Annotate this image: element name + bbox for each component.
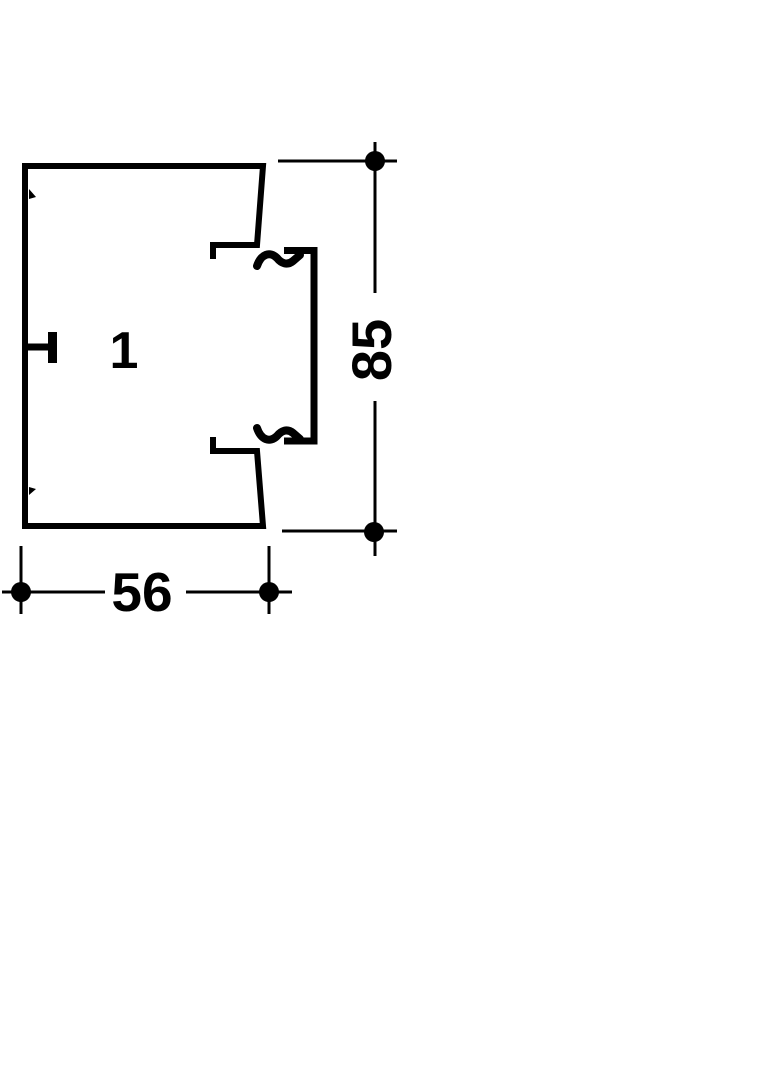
width-dimension-value: 56 — [111, 561, 172, 623]
cover-channel — [257, 251, 314, 442]
trunking-cross-section-drawing: 85 56 1 — [0, 0, 784, 1066]
height-dimension-dot-bottom — [364, 522, 384, 542]
base-profile-outline — [25, 166, 263, 526]
width-dimension: 56 — [2, 546, 292, 623]
wall-notch-top — [29, 189, 36, 199]
height-dimension-value: 85 — [340, 319, 403, 381]
wall-notch-bottom — [29, 487, 36, 495]
cover-clip-squiggle-top — [257, 254, 300, 266]
cover-channel-outline — [284, 251, 314, 442]
height-dimension: 85 — [278, 142, 403, 556]
width-dimension-dot-left — [11, 582, 31, 602]
cover-clip-squiggle-bottom — [257, 428, 300, 440]
base-profile — [25, 166, 263, 526]
section-number-label: 1 — [110, 322, 139, 380]
height-dimension-dot-top — [365, 151, 385, 171]
diagram-canvas: 85 56 1 — [0, 0, 784, 1066]
width-dimension-dot-right — [259, 582, 279, 602]
